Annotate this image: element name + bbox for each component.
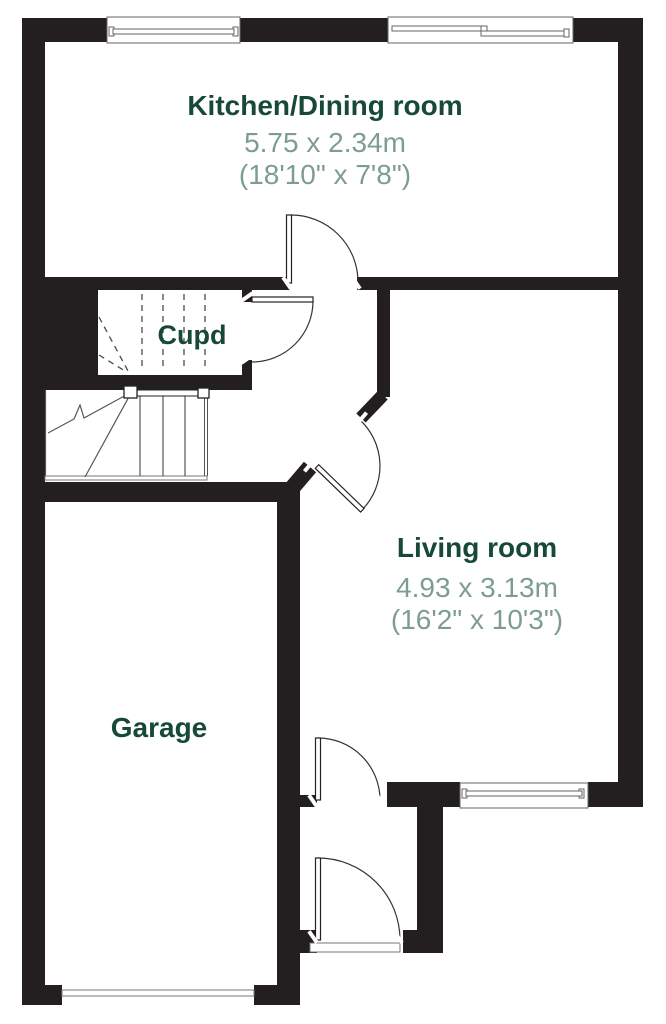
kitchen-window-right (388, 17, 573, 43)
kitchen-door (287, 215, 359, 283)
kitchen-window-left (107, 17, 240, 43)
stairs-handrail (137, 390, 198, 396)
front-door-threshold (310, 943, 400, 952)
stairs-up-line-with-break (48, 394, 128, 433)
porch-livingroom-door (316, 738, 381, 800)
garage-door-threshold (62, 990, 254, 996)
front-door (316, 858, 401, 940)
hall-livingroom-door (315, 419, 380, 512)
cupboard-label: Cupd (158, 320, 227, 350)
wall-stairs-bottom (22, 482, 288, 502)
livingroom-imperial-dimensions: (16'2" x 10'3") (391, 604, 563, 635)
stairs-newel-post-right (198, 388, 209, 398)
stairs-newel-post-left (124, 386, 137, 398)
livingroom-label: Living room (397, 532, 557, 563)
stairs-winder-line (85, 393, 131, 477)
wall-garage-bottom-left (22, 985, 62, 1005)
floor-plan: Kitchen/Dining room 5.75 x 2.34m (18'10"… (0, 0, 666, 1024)
labels: Kitchen/Dining room 5.75 x 2.34m (18'10"… (111, 90, 563, 743)
kitchen-imperial-dimensions: (18'10" x 7'8") (239, 159, 411, 190)
floor-plan-canvas: Kitchen/Dining room 5.75 x 2.34m (18'10"… (0, 0, 666, 1024)
wall-livingroom-bottom-right (588, 782, 643, 807)
wall-left-exterior (22, 18, 45, 1005)
staircase (45, 386, 209, 480)
cupboard-dash-diag-1 (99, 317, 128, 371)
wall-mass-left-of-cupboard (22, 277, 98, 390)
wall-garage-bottom-right (254, 985, 300, 1005)
wall-kitchen-bottom-right (357, 277, 618, 290)
garage-label: Garage (111, 712, 208, 743)
stairs-bottom-edge (45, 476, 207, 480)
kitchen-room-label: Kitchen/Dining room (187, 90, 462, 121)
wall-porch-right (417, 782, 443, 953)
livingroom-window (460, 783, 588, 808)
wall-livingroom-left (377, 290, 390, 397)
livingroom-metric-dimensions: 4.93 x 3.13m (396, 572, 558, 603)
cupboard-door (252, 297, 313, 362)
wall-frontdoor-right-stub (403, 930, 417, 953)
kitchen-metric-dimensions: 5.75 x 2.34m (244, 127, 406, 158)
wall-garage-right (277, 482, 300, 1005)
wall-right-exterior (618, 18, 643, 807)
